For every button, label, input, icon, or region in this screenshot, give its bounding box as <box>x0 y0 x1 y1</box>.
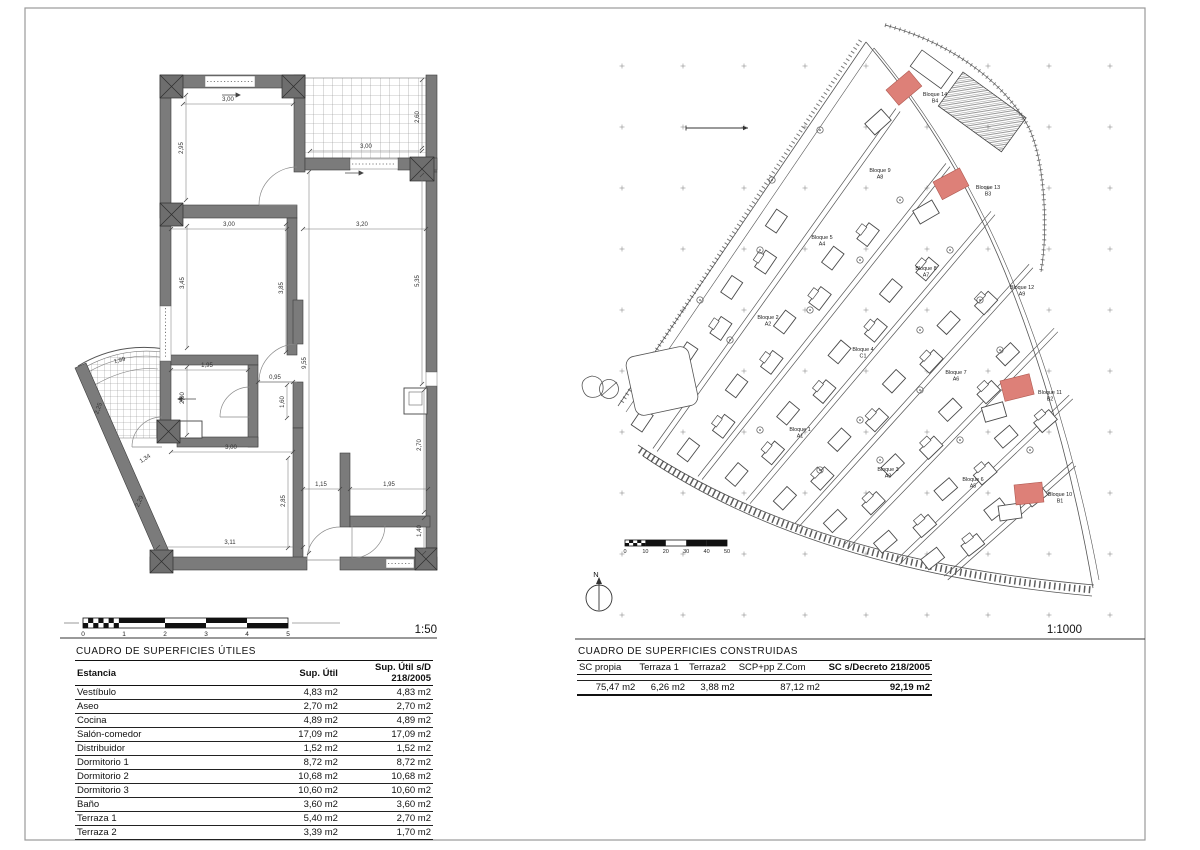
bloque-label: Bloque 9A8 <box>869 168 890 180</box>
table-cell: 2,70 m2 <box>340 812 433 826</box>
table-cell: Terraza 2 <box>75 826 247 840</box>
built-areas-table: CUADRO DE SUPERFICIES CONSTRUIDAS SC pro… <box>577 646 932 696</box>
svg-text:3,00: 3,00 <box>223 222 235 228</box>
table-row: Vestíbulo4,83 m24,83 m2 <box>75 686 433 700</box>
table-cell: Vestíbulo <box>75 686 247 700</box>
table-cell: Cocina <box>75 714 247 728</box>
column-header: SCP+pp Z.Com <box>737 661 822 675</box>
table-row: Terraza 23,39 m21,70 m2 <box>75 826 433 840</box>
building-unit <box>773 486 796 509</box>
svg-text:3,11: 3,11 <box>224 540 236 546</box>
table-cell: Dormitorio 1 <box>75 756 247 770</box>
scalebar-tick: 40 <box>704 549 710 555</box>
north-arrow: N <box>586 570 612 611</box>
bloque-label: Bloque 11B2 <box>1038 390 1062 402</box>
building-unit <box>822 246 844 270</box>
building-unit <box>865 109 891 135</box>
building-unit <box>879 279 902 303</box>
table-cell: 4,89 m2 <box>340 714 433 728</box>
dimension-label: 1,95 <box>348 482 430 491</box>
dimension-label: 3,00 <box>181 97 295 106</box>
useful-areas-table: CUADRO DE SUPERFICIES ÚTILES EstanciaSup… <box>75 646 433 840</box>
svg-text:3,20: 3,20 <box>356 222 368 228</box>
table-cell: 2,70 m2 <box>340 700 433 714</box>
column-header: Estancia <box>75 661 247 686</box>
bloque-label: Bloque 3A3 <box>877 467 898 479</box>
building-unit <box>828 428 851 451</box>
building-unit <box>765 209 787 233</box>
svg-text:1,15: 1,15 <box>315 482 327 488</box>
table-header-row: SC propiaTerraza 1Terraza2SCP+pp Z.ComSC… <box>577 661 932 675</box>
table-row: Baño3,60 m23,60 m2 <box>75 798 433 812</box>
table-row: Salón-comedor17,09 m217,09 m2 <box>75 728 433 742</box>
pillar <box>160 203 183 226</box>
floor-plan: 3,002,953,002,603,003,203,453,855,359,55… <box>60 75 437 638</box>
pillar <box>282 75 305 98</box>
column-header: Sup. Útil s/D 218/2005 <box>340 661 433 686</box>
table-cell: Distribuidor <box>75 742 247 756</box>
dimension-label: 3,45 <box>180 224 189 350</box>
svg-text:2,60: 2,60 <box>415 111 421 123</box>
bloque-label: Bloque 7A6 <box>945 370 966 382</box>
scalebar-tick: 30 <box>683 549 689 555</box>
table-row: Distribuidor1,52 m21,52 m2 <box>75 742 433 756</box>
siteplan-scale-label: 1:1000 <box>1047 624 1082 636</box>
site-boundary-south <box>638 445 1094 596</box>
dimension-label: 2,85 <box>281 456 290 550</box>
building-unit <box>882 369 905 392</box>
building-unit <box>777 401 800 425</box>
bloque-label: Bloque 12A9 <box>1010 285 1034 297</box>
table-cell: 3,88 m2 <box>687 681 737 696</box>
svg-text:3,45: 3,45 <box>180 277 186 289</box>
built-areas-title: CUADRO DE SUPERFICIES CONSTRUIDAS <box>578 646 932 657</box>
scalebar-tick: 0 <box>81 631 85 638</box>
dimension-label: 0,95 <box>256 375 295 384</box>
table-cell: 10,60 m2 <box>247 784 340 798</box>
table-cell: 2,70 m2 <box>247 700 340 714</box>
table-cell: Dormitorio 3 <box>75 784 247 798</box>
table-cell: 87,12 m2 <box>737 681 822 696</box>
roundabout <box>582 345 699 417</box>
table-cell: 3,39 m2 <box>247 826 340 840</box>
dimension-label: 2,95 <box>179 93 188 202</box>
building-unit <box>994 425 1018 448</box>
table-cell: 1,70 m2 <box>340 826 433 840</box>
dimension-label: 1,60 <box>280 383 289 420</box>
survey-cross-grid <box>620 64 1113 618</box>
table-cell: Baño <box>75 798 247 812</box>
pillar <box>150 550 173 573</box>
svg-text:1,34: 1,34 <box>139 453 153 465</box>
building-unit <box>828 340 851 364</box>
svg-text:3,85: 3,85 <box>279 282 285 294</box>
svg-text:2,70: 2,70 <box>417 439 423 451</box>
table-cell: 1,52 m2 <box>247 742 340 756</box>
table-cell: 10,60 m2 <box>340 784 433 798</box>
svg-text:3,00: 3,00 <box>225 445 237 451</box>
building-unit <box>725 374 747 398</box>
dimension-label: 3,20 <box>301 222 428 231</box>
floorplan-scale-label: 1:50 <box>415 624 437 636</box>
pillar <box>160 75 183 98</box>
building-unit <box>981 402 1006 422</box>
building-unit <box>937 311 960 334</box>
building-unit <box>725 463 748 487</box>
scalebar-tick: 0 <box>623 549 626 555</box>
svg-text:0,95: 0,95 <box>269 375 281 381</box>
dimension-label: 1,34 <box>139 453 153 465</box>
svg-text:1,95: 1,95 <box>201 363 213 369</box>
bloque-label: Bloque 1A1 <box>789 427 810 439</box>
table-cell: Terraza 1 <box>75 812 247 826</box>
building-unit <box>996 343 1019 366</box>
svg-text:1,95: 1,95 <box>383 482 395 488</box>
table-cell: 10,68 m2 <box>247 770 340 784</box>
building-unit <box>773 310 795 334</box>
svg-text:3,00: 3,00 <box>360 144 372 150</box>
highlight-block <box>1000 374 1034 402</box>
site-boundary-north <box>885 25 1045 272</box>
table-row: Cocina4,89 m24,89 m2 <box>75 714 433 728</box>
svg-text:2,95: 2,95 <box>179 142 185 154</box>
table-cell: Salón-comedor <box>75 728 247 742</box>
building-unit <box>677 438 699 462</box>
table-cell: 17,09 m2 <box>340 728 433 742</box>
dimension-label: 3,85 <box>279 222 288 354</box>
table-cell: Aseo <box>75 700 247 714</box>
table-row: Terraza 15,40 m22,70 m2 <box>75 812 433 826</box>
scalebar-tick: 3 <box>204 631 208 638</box>
table-cell: 4,83 m2 <box>340 686 433 700</box>
highlight-block <box>886 71 922 106</box>
table-row: Aseo2,70 m22,70 m2 <box>75 700 433 714</box>
building-unit <box>823 509 846 532</box>
svg-text:5,35: 5,35 <box>415 275 421 287</box>
pool-area <box>938 72 1026 152</box>
table-cell: Dormitorio 2 <box>75 770 247 784</box>
dimension-label: 3,11 <box>156 540 305 549</box>
bloque-label: Bloque 10B1 <box>1048 492 1072 504</box>
siteplan-scalebar: 01020304050 <box>623 540 730 555</box>
building-unit <box>998 503 1022 521</box>
table-row: Dormitorio 210,68 m210,68 m2 <box>75 770 433 784</box>
dimension-label: 5,35 <box>415 173 424 386</box>
building-unit <box>874 530 898 553</box>
bloque-labels: Bloque 1A1Bloque 2A2Bloque 3A3Bloque 4C1… <box>757 92 1072 504</box>
bloque-label: Bloque 13B3 <box>976 185 1000 197</box>
table-cell: 17,09 m2 <box>247 728 340 742</box>
pillar <box>157 420 180 443</box>
table-cell: 6,26 m2 <box>637 681 687 696</box>
column-header: SC s/Decreto 218/2005 <box>822 661 932 675</box>
scalebar-tick: 5 <box>286 631 290 638</box>
table-cell: 1,52 m2 <box>340 742 433 756</box>
column-header: Sup. Útil <box>247 661 340 686</box>
table-cell: 8,72 m2 <box>340 756 433 770</box>
scalebar-tick: 1 <box>122 631 126 638</box>
useful-areas-grid: EstanciaSup. ÚtilSup. Útil s/D 218/2005 … <box>75 660 433 840</box>
table-cell: 3,60 m2 <box>340 798 433 812</box>
table-row: Dormitorio 310,60 m210,60 m2 <box>75 784 433 798</box>
dimension-label: 1,15 <box>301 482 342 491</box>
building-unit <box>938 398 961 421</box>
table-cell: 4,89 m2 <box>247 714 340 728</box>
building-rows <box>631 109 1057 570</box>
table-row: 75,47 m26,26 m23,88 m287,12 m292,19 m2 <box>577 681 932 696</box>
built-areas-grid: SC propiaTerraza 1Terraza2SCP+pp Z.ComSC… <box>577 660 932 696</box>
building-unit <box>913 200 940 224</box>
table-cell: 8,72 m2 <box>247 756 340 770</box>
table-header-row: EstanciaSup. ÚtilSup. Útil s/D 218/2005 <box>75 661 433 686</box>
plan-sheet: 3,002,953,002,603,003,203,453,855,359,55… <box>0 0 1200 850</box>
svg-text:2,00: 2,00 <box>180 392 186 404</box>
svg-text:3,00: 3,00 <box>222 97 234 103</box>
dimension-label: 9,55 <box>302 170 311 555</box>
table-cell: 5,40 m2 <box>247 812 340 826</box>
scalebar-tick: 2 <box>163 631 167 638</box>
column-header: SC propia <box>577 661 637 675</box>
floorplan-scalebar: 012345 <box>64 618 340 638</box>
svg-text:1,40: 1,40 <box>417 525 423 537</box>
building-unit <box>721 275 743 299</box>
highlight-block <box>1014 482 1044 505</box>
table-cell: 3,60 m2 <box>247 798 340 812</box>
scalebar-tick: 10 <box>642 549 648 555</box>
svg-text:9,55: 9,55 <box>302 357 308 369</box>
bloque-label: Bloque 5A4 <box>811 235 832 247</box>
site-plan: Bloque 1A1Bloque 2A2Bloque 3A3Bloque 4C1… <box>575 25 1145 639</box>
useful-areas-title: CUADRO DE SUPERFICIES ÚTILES <box>76 646 433 657</box>
table-row: Dormitorio 18,72 m28,72 m2 <box>75 756 433 770</box>
table-cell: 75,47 m2 <box>577 681 637 696</box>
scalebar-tick: 4 <box>245 631 249 638</box>
scalebar-tick: 20 <box>663 549 669 555</box>
svg-text:1,60: 1,60 <box>280 396 286 408</box>
building-unit <box>934 478 958 501</box>
north-label: N <box>593 570 598 579</box>
column-header: Terraza 1 <box>637 661 687 675</box>
table-cell: 4,83 m2 <box>247 686 340 700</box>
svg-text:2,85: 2,85 <box>281 495 287 507</box>
table-cell: 10,68 m2 <box>340 770 433 784</box>
table-cell: 92,19 m2 <box>822 681 932 696</box>
scalebar-tick: 50 <box>724 549 730 555</box>
column-header: Terraza2 <box>687 661 737 675</box>
entry-arrow <box>686 126 748 131</box>
